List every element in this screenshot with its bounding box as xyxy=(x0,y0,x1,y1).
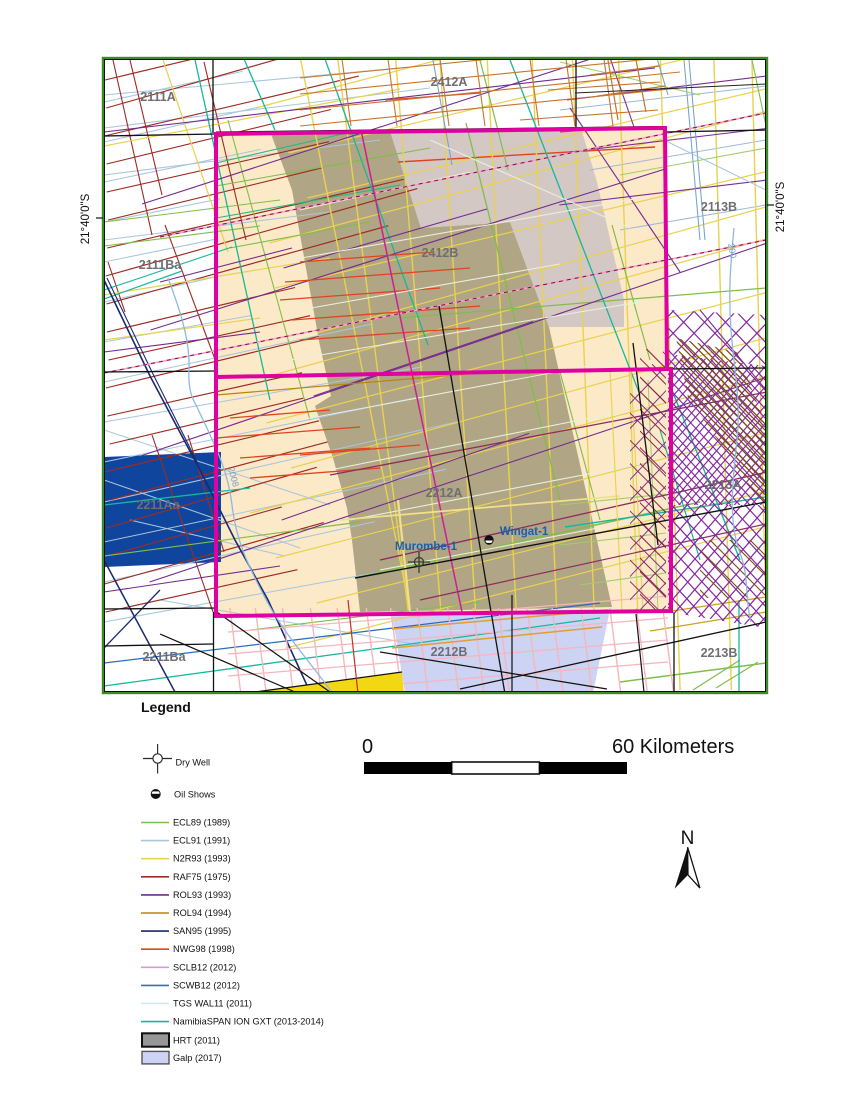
svg-text:2111Ba: 2111Ba xyxy=(139,258,182,272)
svg-text:SAN95 (1995): SAN95 (1995) xyxy=(173,926,231,936)
svg-text:2412B: 2412B xyxy=(422,246,459,260)
svg-text:60 Kilometers: 60 Kilometers xyxy=(612,736,734,758)
svg-text:Legend: Legend xyxy=(141,699,191,715)
svg-text:2213A: 2213A xyxy=(705,478,742,492)
svg-text:2212B: 2212B xyxy=(431,645,468,659)
svg-text:Wingat-1: Wingat-1 xyxy=(500,526,549,538)
svg-text:SCLB12 (2012): SCLB12 (2012) xyxy=(173,962,236,972)
svg-text:N: N xyxy=(681,828,695,849)
svg-text:2211Ba: 2211Ba xyxy=(142,650,186,664)
svg-text:2412A: 2412A xyxy=(431,75,468,89)
svg-text:ROL93 (1993): ROL93 (1993) xyxy=(173,890,231,900)
svg-text:21°40'0"S: 21°40'0"S xyxy=(775,181,787,232)
svg-text:Galp (2017): Galp (2017) xyxy=(173,1053,222,1063)
svg-text:TGS WAL11 (2011): TGS WAL11 (2011) xyxy=(173,999,252,1009)
svg-text:2211Aa: 2211Aa xyxy=(136,498,180,512)
svg-text:0: 0 xyxy=(362,736,373,758)
svg-text:2213B: 2213B xyxy=(701,646,738,660)
svg-text:2212A: 2212A xyxy=(426,486,463,500)
svg-text:2113B: 2113B xyxy=(701,200,737,214)
svg-text:RAF75 (1975): RAF75 (1975) xyxy=(173,872,231,882)
svg-text:NamibiaSPAN ION GXT (2013-2014: NamibiaSPAN ION GXT (2013-2014) xyxy=(173,1017,324,1027)
svg-text:N2R93 (1993): N2R93 (1993) xyxy=(173,854,231,864)
svg-text:ECL91 (1991): ECL91 (1991) xyxy=(173,836,230,846)
svg-text:Murombe-1: Murombe-1 xyxy=(395,541,458,553)
svg-text:NWG98 (1998): NWG98 (1998) xyxy=(173,944,235,954)
svg-text:21°40'0"S: 21°40'0"S xyxy=(80,193,92,244)
svg-text:Oil Shows: Oil Shows xyxy=(174,789,216,799)
svg-text:Dry Well: Dry Well xyxy=(176,758,211,768)
svg-text:ROL94 (1994): ROL94 (1994) xyxy=(173,908,231,918)
svg-text:ECL89 (1989): ECL89 (1989) xyxy=(173,818,230,828)
svg-text:SCWB12 (2012): SCWB12 (2012) xyxy=(173,980,240,990)
svg-text:2111A: 2111A xyxy=(140,90,175,104)
svg-text:HRT (2011): HRT (2011) xyxy=(173,1036,220,1046)
